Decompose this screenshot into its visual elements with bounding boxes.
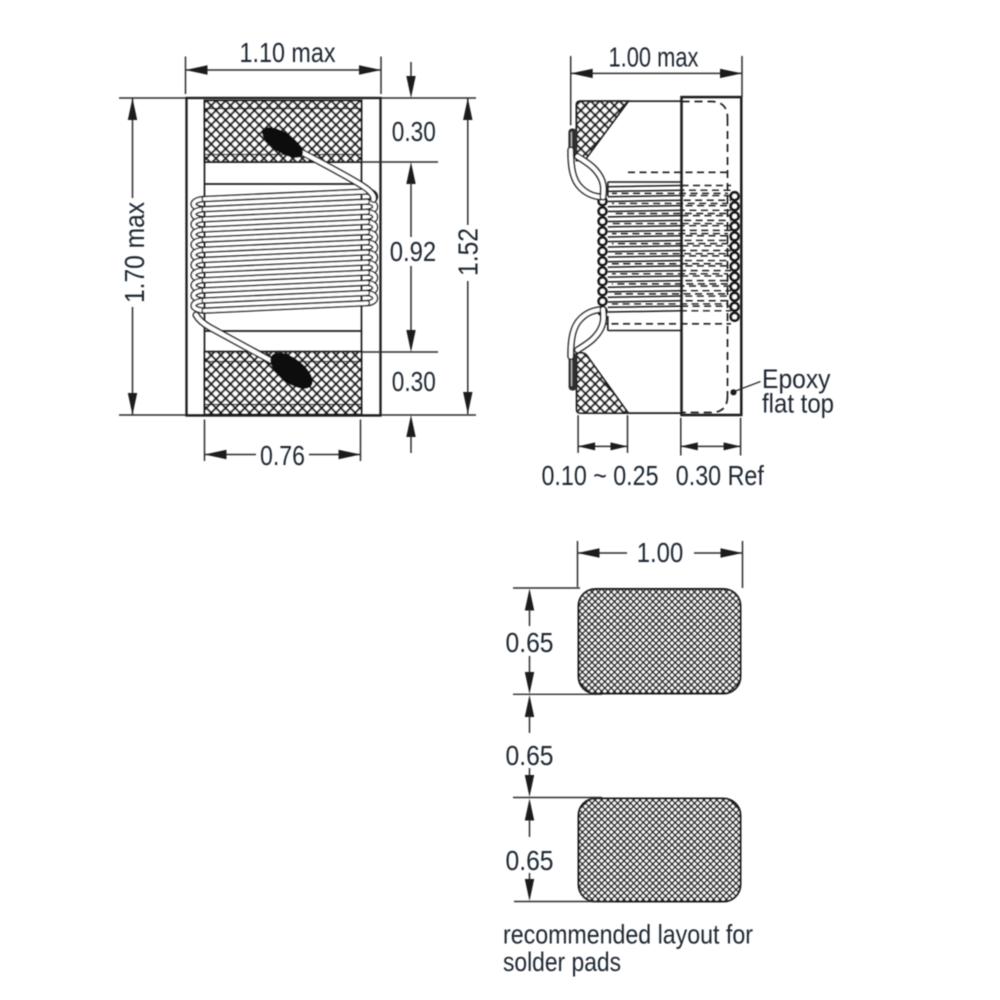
svg-text:1.00: 1.00	[637, 537, 684, 568]
svg-text:recommended layout for: recommended layout for	[503, 920, 753, 950]
svg-text:flat top: flat top	[762, 389, 834, 419]
svg-text:0.92: 0.92	[390, 236, 436, 267]
svg-text:1.10 max: 1.10 max	[240, 37, 336, 68]
svg-text:0.76: 0.76	[260, 440, 305, 471]
svg-text:0.10 ~ 0.25: 0.10 ~ 0.25	[542, 460, 659, 491]
svg-text:0.30: 0.30	[392, 116, 436, 147]
svg-text:0.65: 0.65	[506, 845, 554, 876]
svg-text:1.00 max: 1.00 max	[609, 42, 699, 73]
svg-text:0.65: 0.65	[506, 627, 554, 658]
svg-text:solder pads: solder pads	[503, 947, 621, 977]
svg-text:1.52: 1.52	[453, 228, 484, 276]
svg-text:0.65: 0.65	[506, 740, 554, 771]
svg-text:0.30: 0.30	[392, 366, 436, 397]
svg-text:0.30 Ref: 0.30 Ref	[676, 460, 764, 491]
svg-text:1.70 max: 1.70 max	[119, 202, 150, 303]
